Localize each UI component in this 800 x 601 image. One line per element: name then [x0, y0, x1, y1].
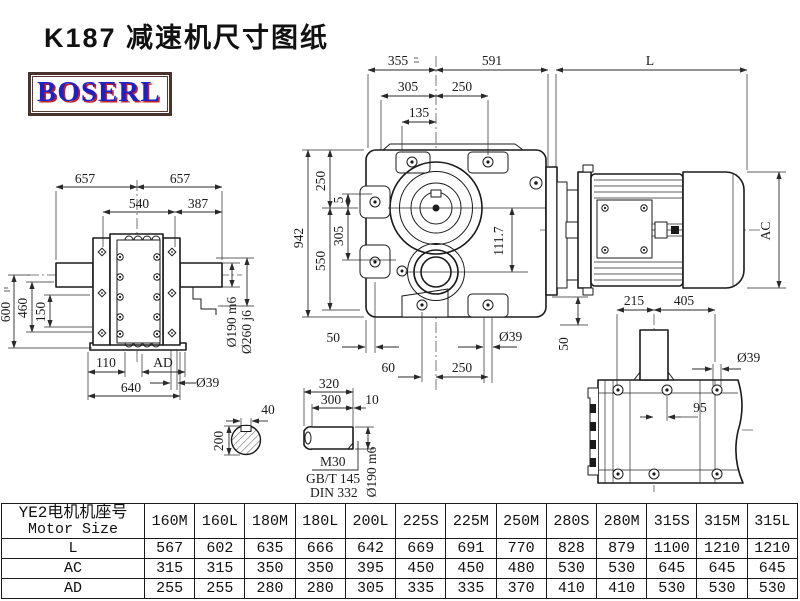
dim-300: 300	[321, 392, 342, 407]
table-cell: 1210	[697, 539, 747, 559]
table-cell: 335	[446, 579, 496, 599]
dim-110: 110	[96, 355, 116, 370]
dim-60: 60	[382, 360, 396, 375]
table-cell: 828	[546, 539, 596, 559]
dim-657-left: 657	[75, 171, 96, 186]
table-cell: 1100	[647, 539, 697, 559]
table-cell: 1210	[747, 539, 797, 559]
motor-flange	[578, 172, 591, 288]
table-cell: 370	[496, 579, 546, 599]
table-cell: 666	[295, 539, 345, 559]
dim-dia260: Ø260 j6	[239, 310, 254, 354]
table-cell: 645	[747, 559, 797, 579]
top-view-housing	[598, 380, 743, 483]
table-cell: 602	[195, 539, 245, 559]
dim-150: 150	[33, 302, 48, 323]
table-cell: 669	[396, 539, 446, 559]
dim-135: 135	[409, 105, 430, 120]
table-cell: 280	[245, 579, 295, 599]
table-cell: 480	[496, 559, 546, 579]
col-header: 160L	[195, 504, 245, 539]
dim-305-left: 305	[331, 226, 346, 247]
header-en: Motor Size	[2, 522, 144, 538]
col-header: 280S	[546, 504, 596, 539]
table-cell: 770	[496, 539, 546, 559]
table-cell: 410	[596, 579, 646, 599]
table-header-motor-size: YE2电机机座号 Motor Size	[2, 504, 145, 539]
shaft-detail: 320 300 10 M30 GB/T 145 DIN 332 Ø190 m6	[304, 376, 379, 500]
table-cell: 280	[295, 579, 345, 599]
dim-591: 591	[482, 53, 502, 68]
dim-111-7: 111.7	[491, 226, 506, 256]
table-row-AD: AD 255 255 280 280 305 335 335 370 410 4…	[2, 579, 798, 599]
dim-dia39-left-view: Ø39	[196, 375, 219, 390]
dim-215: 215	[624, 293, 645, 308]
dim-40: 40	[261, 402, 275, 417]
vertical-shaft	[640, 330, 668, 380]
col-header: 160M	[145, 504, 195, 539]
table-cell: 530	[747, 579, 797, 599]
table-cell: 530	[697, 579, 747, 599]
table-cell: 530	[596, 559, 646, 579]
left-output-shaft	[56, 263, 93, 287]
dim-200: 200	[211, 431, 226, 452]
dim-AC: AC	[758, 222, 773, 241]
fan-cover	[683, 172, 744, 288]
dim-540: 540	[129, 196, 150, 211]
row-label: L	[2, 539, 145, 559]
dim-600: 600	[0, 302, 13, 323]
table-cell: 255	[195, 579, 245, 599]
table-cell: 350	[245, 559, 295, 579]
table-cell: 642	[345, 539, 395, 559]
dim-320: 320	[319, 376, 340, 391]
col-header: 280M	[596, 504, 646, 539]
table-cell: 645	[697, 559, 747, 579]
table-cell: 335	[396, 579, 446, 599]
table-cell: 567	[145, 539, 195, 559]
dim-dia190-left-view: Ø190 m6	[224, 296, 239, 347]
label-GBT145: GB/T 145	[306, 471, 360, 486]
technical-drawing: 657 657 540 387 600 460 150	[0, 0, 800, 500]
dim-AD: AD	[153, 355, 173, 370]
dim-387: 387	[188, 196, 209, 211]
table-cell: 530	[546, 559, 596, 579]
table-cell: 255	[145, 579, 195, 599]
dim-305-top: 305	[398, 79, 419, 94]
dim-657-right: 657	[170, 171, 191, 186]
table-cell: 879	[596, 539, 646, 559]
dim-355: 355	[388, 53, 409, 68]
dim-50-right: 50	[556, 337, 571, 351]
left-side-view: 657 657 540 387 600 460 150	[0, 171, 254, 400]
col-header: 180M	[245, 504, 295, 539]
motor-view: AC	[540, 165, 786, 295]
col-header: 315S	[647, 504, 697, 539]
dim-640: 640	[121, 380, 142, 395]
top-view: 215 405 Ø39 95	[588, 293, 760, 492]
table-row-L: L 567 602 635 666 642 669 691 770 828 87…	[2, 539, 798, 559]
table-cell: 530	[647, 579, 697, 599]
dim-5: 5	[331, 196, 346, 203]
dim-250-top: 250	[452, 79, 473, 94]
col-header: 225S	[396, 504, 446, 539]
table-cell: 315	[195, 559, 245, 579]
table-cell: 450	[446, 559, 496, 579]
label-DIN332: DIN 332	[310, 485, 358, 500]
col-header: 315L	[747, 504, 797, 539]
table-cell: 350	[295, 559, 345, 579]
row-label: AD	[2, 579, 145, 599]
label-M30: M30	[320, 454, 346, 469]
dim-dia39-front: Ø39	[499, 329, 522, 344]
table-cell: 410	[546, 579, 596, 599]
col-header: 250M	[496, 504, 546, 539]
dim-550: 550	[313, 251, 328, 272]
shaft-cross-section: 40 200	[211, 402, 275, 455]
table-cell: 305	[345, 579, 395, 599]
table-cell: 635	[245, 539, 295, 559]
output-bell	[546, 167, 557, 295]
motor-size-table: YE2电机机座号 Motor Size 160M 160L 180M 180L …	[1, 503, 798, 599]
table-cell: 315	[145, 559, 195, 579]
drawing-page: K187 减速机尺寸图纸 BOSERL	[0, 0, 800, 601]
dim-50-bottom-left: 50	[327, 330, 341, 345]
table-cell: 395	[345, 559, 395, 579]
table-cell: 450	[396, 559, 446, 579]
col-header: 200L	[345, 504, 395, 539]
col-header: 225M	[446, 504, 496, 539]
dim-dia190-shaft: Ø190 m6	[364, 446, 379, 497]
dim-10: 10	[365, 392, 379, 407]
header-cn: YE2电机机座号	[2, 504, 144, 522]
table-row-AC: AC 315 315 350 350 395 450 450 480 530 5…	[2, 559, 798, 579]
dim-405: 405	[674, 293, 695, 308]
dim-460: 460	[15, 298, 30, 319]
col-header: 315M	[697, 504, 747, 539]
dim-250-left: 250	[313, 171, 328, 192]
dim-250-bottom: 250	[452, 360, 473, 375]
table-cell: 691	[446, 539, 496, 559]
table-cell: 645	[647, 559, 697, 579]
dim-95: 95	[693, 400, 707, 415]
dim-dia39-top-view: Ø39	[737, 350, 760, 365]
right-output-shaft	[180, 263, 222, 287]
dim-942: 942	[291, 228, 306, 248]
col-header: 180L	[295, 504, 345, 539]
dim-L: L	[646, 53, 654, 68]
table-header-row: YE2电机机座号 Motor Size 160M 160L 180M 180L …	[2, 504, 798, 539]
row-label: AC	[2, 559, 145, 579]
